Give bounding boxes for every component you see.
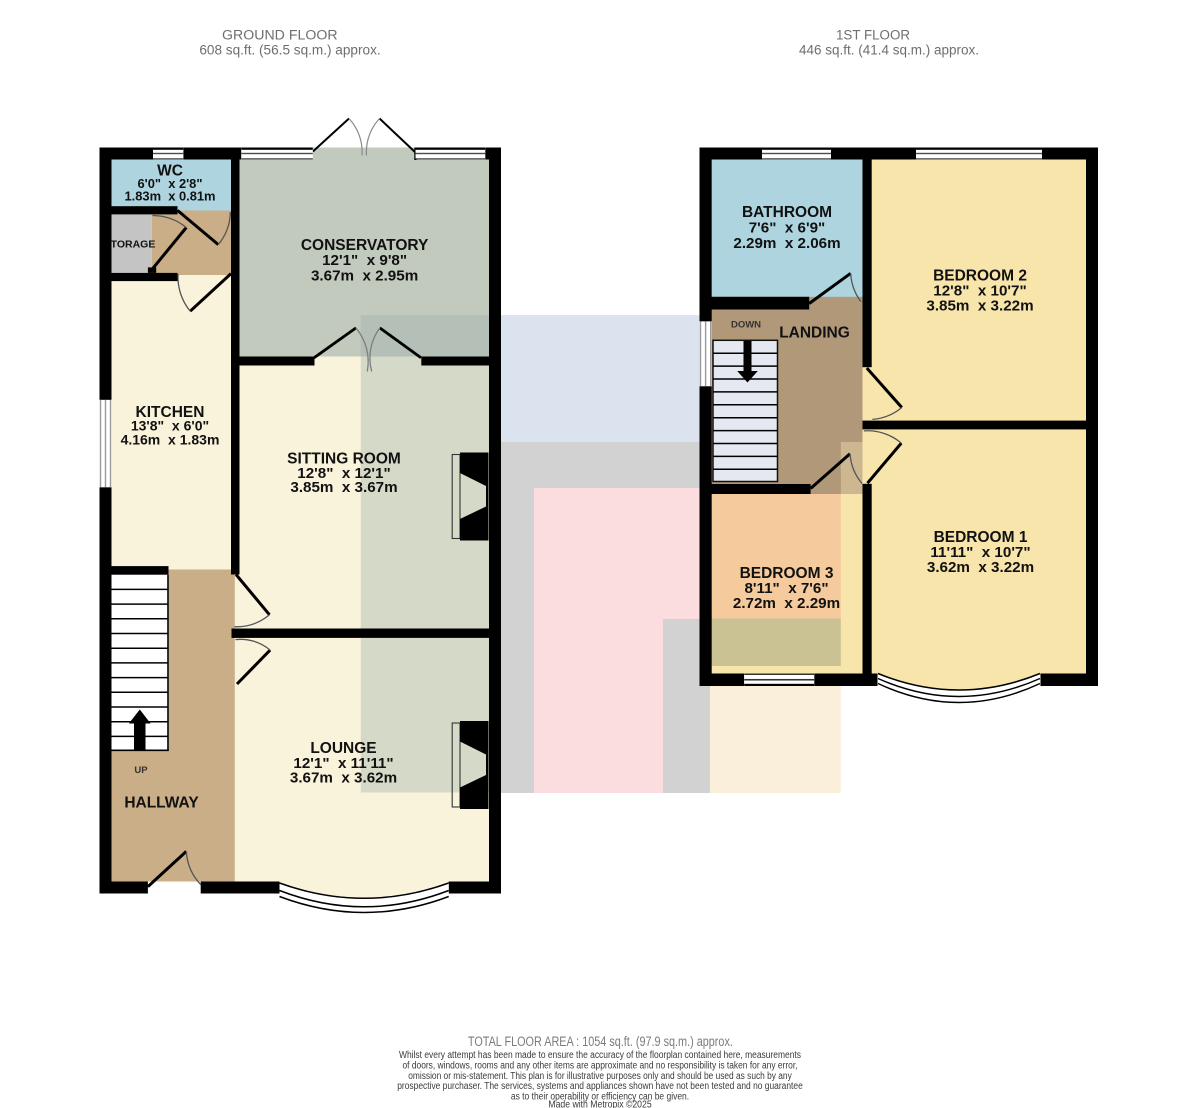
- svg-text:446 sq.ft. (41.4 sq.m.) approx: 446 sq.ft. (41.4 sq.m.) approx.: [799, 42, 979, 57]
- svg-text:BATHROOM: BATHROOM: [742, 204, 832, 221]
- svg-text:LANDING: LANDING: [779, 324, 850, 341]
- svg-text:1.83m x 0.81m: 1.83m x 0.81m: [124, 188, 215, 203]
- svg-text:2.29m x 2.06m: 2.29m x 2.06m: [733, 235, 840, 252]
- svg-text:3.85m x 3.22m: 3.85m x 3.22m: [926, 298, 1033, 315]
- svg-text:3.67m x 2.95m: 3.67m x 2.95m: [311, 267, 418, 284]
- svg-text:prospective purchaser. The ser: prospective purchaser. The services, sys…: [397, 1081, 803, 1092]
- svg-text:TOTAL FLOOR AREA : 1054 sq.ft.: TOTAL FLOOR AREA : 1054 sq.ft. (97.9 sq.…: [468, 1034, 733, 1049]
- svg-text:Made with Metropix ©2025: Made with Metropix ©2025: [548, 1100, 651, 1108]
- svg-text:of doors, windows, rooms and a: of doors, windows, rooms and any other i…: [403, 1060, 798, 1071]
- svg-text:GROUND FLOOR: GROUND FLOOR: [222, 27, 338, 42]
- svg-text:7'6" x 6'9": 7'6" x 6'9": [749, 220, 826, 237]
- svg-text:UP: UP: [134, 765, 148, 776]
- svg-text:4.16m x 1.83m: 4.16m x 1.83m: [121, 431, 220, 447]
- svg-text:608 sq.ft. (56.5 sq.m.) approx: 608 sq.ft. (56.5 sq.m.) approx.: [199, 42, 380, 57]
- svg-text:2.72m x 2.29m: 2.72m x 2.29m: [733, 595, 840, 612]
- svg-text:1ST FLOOR: 1ST FLOOR: [836, 27, 910, 42]
- svg-text:3.62m x 3.22m: 3.62m x 3.22m: [927, 559, 1034, 576]
- svg-text:HALLWAY: HALLWAY: [124, 795, 199, 812]
- svg-text:Whilst every attempt has been: Whilst every attempt has been made to en…: [399, 1050, 801, 1061]
- svg-text:3.67m x 3.62m: 3.67m x 3.62m: [290, 770, 397, 787]
- svg-text:omission or mis-statement. Thi: omission or mis-statement. This plan is …: [408, 1071, 792, 1082]
- svg-text:DOWN: DOWN: [731, 320, 761, 331]
- svg-text:3.85m x 3.67m: 3.85m x 3.67m: [290, 479, 397, 496]
